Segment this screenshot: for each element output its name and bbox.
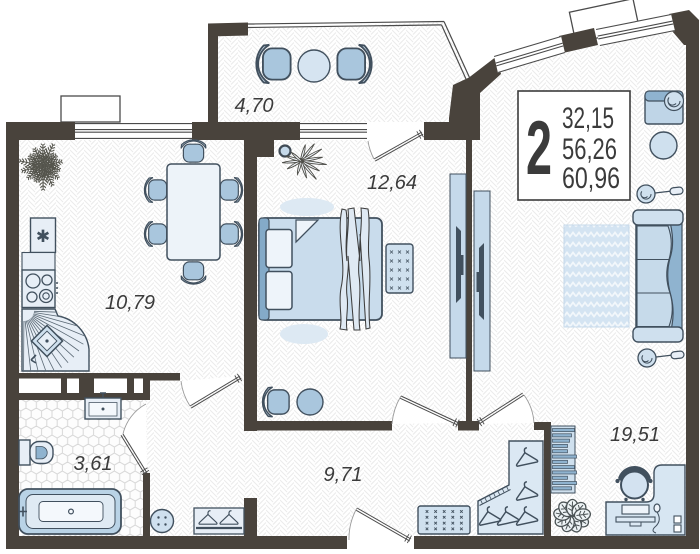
svg-text:3,61: 3,61 (74, 453, 113, 475)
svg-text:19,51: 19,51 (610, 424, 660, 446)
svg-text:60,96: 60,96 (562, 162, 620, 195)
svg-text:2: 2 (526, 106, 552, 191)
svg-text:32,15: 32,15 (562, 102, 614, 135)
svg-text:10,79: 10,79 (105, 292, 155, 314)
svg-text:4,70: 4,70 (235, 95, 274, 117)
svg-text:12,64: 12,64 (367, 172, 417, 194)
svg-text:9,71: 9,71 (324, 464, 363, 486)
svg-text:✱: ✱ (36, 227, 50, 246)
